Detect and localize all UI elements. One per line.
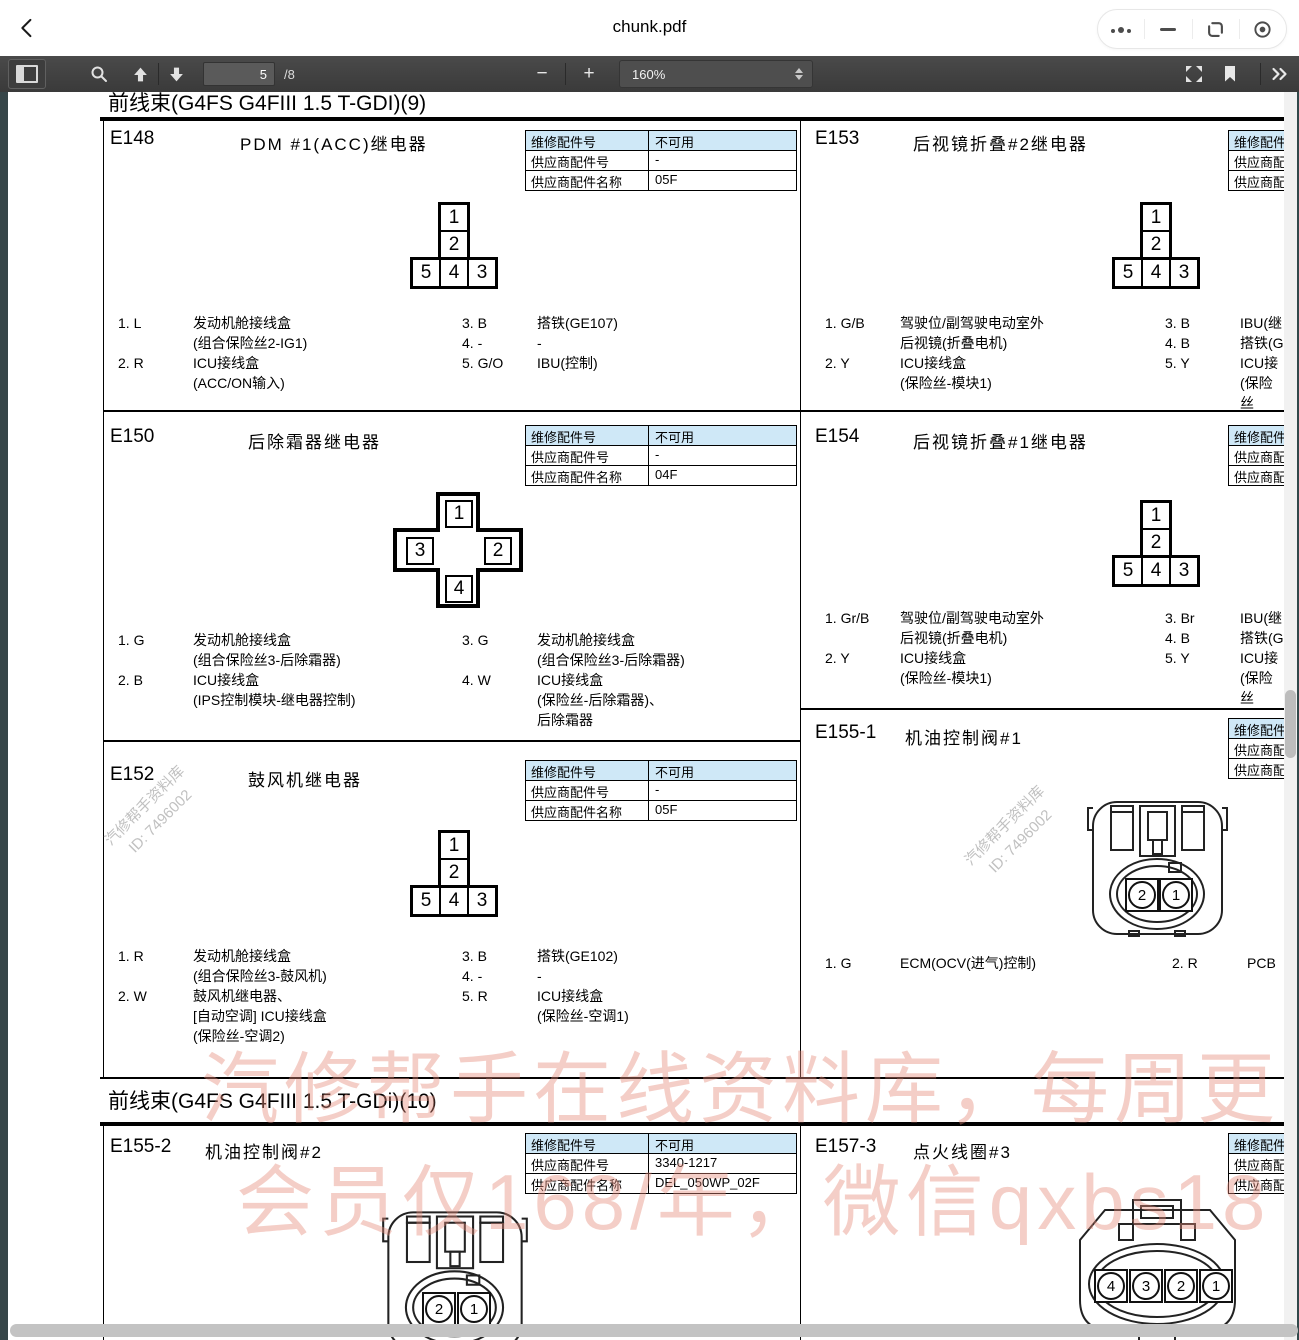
pin-desc: ICU接线盒 (ACC/ON输入) (193, 353, 285, 393)
more-dots-icon (1110, 20, 1133, 38)
connector-title: 机油控制阀#2 (205, 1138, 323, 1163)
toolbar-divider (565, 63, 566, 85)
pin-row: 4. WICU接线盒 (保险丝-后除霜器)、 后除霜器 (462, 670, 685, 730)
pin-list: 3. G发动机舱接线盒 (组合保险丝3-后除霜器) 4. WICU接线盒 (保险… (462, 630, 685, 730)
parts-table: 维修配件号 供应商配件号 供应商配件名称 (1228, 130, 1284, 191)
connector-pin: 2 (441, 232, 467, 257)
pin-list: 1. GECM(OCV(进气)控制) (825, 953, 1036, 973)
pin-row: 5. G/OIBU(控制) (462, 353, 618, 373)
connector-diagram: 1 3 2 4 (393, 492, 523, 613)
pin-row: 2. W鼓风机继电器、 [自动空调] ICU接线盒 (保险丝-空调2) (118, 986, 327, 1046)
connector-pin-cell: 1 (1159, 878, 1193, 912)
pin-row: 1. G/B驾驶位/副驾驶电动室外 后视镜(折叠电机) (825, 313, 1044, 353)
toolbar-divider (158, 63, 159, 85)
pin-desc: 发动机舱接线盒 (组合保险丝3-鼓风机) (193, 946, 327, 986)
home-button[interactable] (1240, 10, 1286, 48)
table-cell: 不可用 (649, 761, 796, 780)
pin-list: 3. BrIBU(继 4. B搭铁(G 5. YICU接 (保险丝 (1165, 608, 1284, 708)
connector-pin-cell: 3 (1129, 1269, 1163, 1303)
restore-icon (1207, 21, 1224, 38)
pin-desc: ICU接 (保险丝 (1240, 353, 1284, 413)
connector-pin: 4 (441, 888, 469, 914)
toggle-sidebar-button[interactable] (8, 59, 46, 89)
connector-pin: 4 (1143, 260, 1171, 286)
table-row: 维修配件号 (1229, 1134, 1284, 1154)
table-cell: 维修配件号 (526, 761, 649, 780)
connector-title: 机油控制阀#1 (905, 724, 1023, 749)
pin-desc: IBU(继 (1240, 313, 1282, 333)
table-row: 供应商配件号 (1229, 151, 1284, 171)
pin-row: 2. RICU接线盒 (ACC/ON输入) (118, 353, 307, 393)
pin-row: 1. R发动机舱接线盒 (组合保险丝3-鼓风机) (118, 946, 327, 986)
oval-connector-outline (1085, 790, 1230, 940)
pin-list: 3. B搭铁(GE102) 4. -- 5. RICU接线盒 (保险丝-空调1) (462, 946, 629, 1026)
next-page-button[interactable] (168, 66, 185, 83)
connector-pin-cell: 2 (1164, 1269, 1198, 1303)
table-cell: 3340-1217 (649, 1154, 796, 1173)
table-row: 供应商配件名称 (1229, 1174, 1284, 1193)
zoom-level-value: 160% (632, 67, 665, 82)
connector-id: E155-1 (815, 722, 876, 744)
connector-pin-cell: 4 (1094, 1269, 1128, 1303)
connector-pin: 3 (1132, 1272, 1160, 1300)
table-row: 维修配件号不可用 (526, 1134, 796, 1154)
watermark-stamp-text: 汽修帮手资料库 (937, 758, 1073, 894)
pin-list: 3. BIBU(继 4. B搭铁(G 5. YICU接 (保险丝 (1165, 313, 1284, 413)
connector-pin: 2 (1167, 1272, 1195, 1300)
table-cell: 供应商配件号 (526, 1154, 649, 1173)
pin-row: 5. RICU接线盒 (保险丝-空调1) (462, 986, 629, 1026)
watermark-stamp: 汽修帮手资料库 ID: 7496002 (937, 758, 1088, 909)
separator-line (100, 1077, 1284, 1079)
pin-id: 2. W (118, 986, 193, 1046)
connector-pin: 2 (425, 1295, 453, 1323)
pin-row: 1. GECM(OCV(进气)控制) (825, 953, 1036, 973)
pin-list: 2. RPCB (1172, 953, 1276, 973)
pin-desc: 鼓风机继电器、 [自动空调] ICU接线盒 (保险丝-空调2) (193, 986, 327, 1046)
frame-line (103, 121, 104, 1078)
select-spinner-icon (795, 68, 803, 80)
rule (100, 117, 1284, 121)
connector-pin: 1 (1162, 881, 1190, 909)
pin-row: 1. G发动机舱接线盒 (组合保险丝3-后除霜器) (118, 630, 356, 670)
connector-pin-cell: 2 (422, 1292, 456, 1326)
previous-page-button[interactable] (132, 66, 149, 83)
connector-pin-cell: 1 (457, 1292, 491, 1326)
pin-row: 3. BrIBU(继 (1165, 608, 1284, 628)
pin-id: 1. L (118, 313, 193, 353)
pin-desc: ECM(OCV(进气)控制) (900, 953, 1036, 973)
pin-row: 2. YICU接线盒 (保险丝-模块1) (825, 353, 1044, 393)
connector-pin: 2 (441, 860, 467, 885)
connector-diagram: 2 1 (1085, 790, 1230, 945)
connector-pin: 5 (1115, 558, 1143, 584)
connector-title: 后视镜折叠#2继电器 (913, 130, 1088, 155)
pin-id: 2. B (118, 670, 193, 710)
table-cell: 供应商配件名称 (1229, 759, 1284, 778)
pin-id: 4. W (462, 670, 537, 730)
minimize-icon (1160, 28, 1176, 31)
pin-desc: ICU接线盒 (保险丝-模块1) (900, 648, 992, 688)
pin-id: 5. R (462, 986, 537, 1026)
pin-row: 2. YICU接线盒 (保险丝-模块1) (825, 648, 1044, 688)
table-cell: 供应商配件号 (1229, 1154, 1284, 1173)
table-cell: 不可用 (649, 426, 796, 445)
page-number-input[interactable] (203, 62, 275, 86)
separator-line (800, 708, 1284, 710)
parts-table: 维修配件号不可用 供应商配件号- 供应商配件名称04F (525, 425, 797, 486)
table-cell: 维修配件号 (526, 1134, 649, 1153)
pin-row: 5. YICU接 (保险丝 (1165, 648, 1284, 708)
section-header-9: 前线束(G4FS G4FIII 1.5 T-GDI)(9) (108, 92, 426, 117)
table-row: 供应商配件名称05F (526, 801, 796, 820)
pin-id: 3. B (462, 946, 537, 966)
pin-id: 5. Y (1165, 353, 1240, 413)
connector-pin: 4 (1097, 1272, 1125, 1300)
connector-diagram: 4 3 2 1 (1075, 1198, 1240, 1340)
table-cell: 维修配件号 (1229, 719, 1284, 738)
pin-desc: - (537, 966, 542, 986)
pin-list: 1. L发动机舱接线盒 (组合保险丝2-IG1) 2. RICU接线盒 (ACC… (118, 313, 307, 393)
pin-id: 2. Y (825, 353, 900, 393)
horizontal-scrollbar-thumb[interactable] (10, 1324, 1298, 1337)
watermark-stamp-text: 汽修帮手资料库 (77, 738, 213, 874)
table-row: 供应商配件号3340-1217 (526, 1154, 796, 1174)
pin-id: 1. Gr/B (825, 608, 900, 648)
pin-desc: ICU接线盒 (IPS控制模块-继电器控制) (193, 670, 356, 710)
pin-desc: 发动机舱接线盒 (组合保险丝3-后除霜器) (537, 630, 685, 670)
pin-row: 5. YICU接 (保险丝 (1165, 353, 1284, 413)
pdf-page: 前线束(G4FS G4FIII 1.5 T-GDI)(9) E148 PDM #… (8, 92, 1284, 1340)
bookmark-button[interactable] (1223, 65, 1237, 83)
connector-id: E157-3 (815, 1136, 876, 1158)
pin-row: 3. G发动机舱接线盒 (组合保险丝3-后除霜器) (462, 630, 685, 670)
pin-row: 2. RPCB (1172, 953, 1276, 973)
bookmark-icon (1223, 65, 1237, 83)
watermark-stamp: 汽修帮手资料库 ID: 7496002 (77, 738, 228, 889)
pin-id: 1. G/B (825, 313, 900, 353)
frame-line (800, 121, 801, 1078)
connector-id: E154 (815, 426, 859, 448)
table-cell: 04F (649, 466, 796, 485)
pin-row: 3. B搭铁(GE107) (462, 313, 618, 333)
pin-row: 3. B搭铁(GE102) (462, 946, 629, 966)
pin-list: 1. G/B驾驶位/副驾驶电动室外 后视镜(折叠电机) 2. YICU接线盒 (… (825, 313, 1044, 393)
table-cell: 供应商配件名称 (526, 171, 649, 190)
table-row: 供应商配件号- (526, 151, 796, 171)
pin-desc: 搭铁(GE107) (537, 313, 618, 333)
connector-pin: 5 (413, 260, 441, 286)
table-cell: 供应商配件名称 (1229, 1174, 1284, 1193)
connector-pin: 2 (1143, 530, 1169, 555)
pin-id: 2. Y (825, 648, 900, 688)
table-row: 维修配件号不可用 (526, 426, 796, 446)
table-row: 供应商配件号 (1229, 446, 1284, 466)
pin-row: 4. B搭铁(G (1165, 333, 1284, 353)
table-row: 供应商配件名称05F (526, 171, 796, 190)
pin-row: 1. L发动机舱接线盒 (组合保险丝2-IG1) (118, 313, 307, 353)
connector-title: PDM #1(ACC)继电器 (240, 130, 428, 155)
connector-pin: 1 (441, 205, 467, 232)
table-cell: 05F (649, 171, 796, 190)
table-cell: 不可用 (649, 131, 796, 150)
table-row: 供应商配件号- (526, 446, 796, 466)
pin-desc: IBU(控制) (537, 353, 598, 373)
connector-diagram: 2 1 (380, 1200, 530, 1340)
table-row: 维修配件号不可用 (526, 761, 796, 781)
zoom-level-select[interactable]: 160% (619, 60, 813, 88)
page-count-label: /8 (284, 67, 295, 82)
pin-id: 3. B (462, 313, 537, 333)
search-button[interactable] (90, 65, 108, 83)
table-row: 供应商配件号 (1229, 1154, 1284, 1174)
capsule-menu (1097, 9, 1287, 49)
table-row: 维修配件号 (1229, 426, 1284, 446)
connector-id: E148 (110, 128, 154, 150)
parts-table: 维修配件号 供应商配件号 供应商配件名称 (1228, 718, 1284, 779)
window-titlebar: chunk.pdf (0, 0, 1299, 56)
restore-button[interactable] (1193, 10, 1239, 48)
table-row: 维修配件号 (1229, 131, 1284, 151)
table-row: 供应商配件号 (1229, 739, 1284, 759)
table-cell: 维修配件号 (1229, 1134, 1284, 1153)
parts-table: 维修配件号不可用 供应商配件号- 供应商配件名称05F (525, 760, 797, 821)
pin-id: 2. R (118, 353, 193, 393)
table-cell: 供应商配件号 (526, 151, 649, 170)
connector-pin: 1 (460, 1295, 488, 1323)
connector-title: 后视镜折叠#1继电器 (913, 428, 1088, 453)
connector-pin: 4 (445, 575, 473, 603)
zoom-out-button[interactable]: − (528, 63, 556, 85)
more-tools-button[interactable] (1270, 65, 1289, 83)
more-button[interactable] (1098, 10, 1144, 48)
table-row: 供应商配件名称 (1229, 759, 1284, 778)
arrow-down-icon (168, 66, 185, 83)
table-cell: 维修配件号 (1229, 426, 1284, 445)
table-cell: 供应商配件名称 (526, 466, 649, 485)
connector-diagram: 1 2 5 4 3 (410, 202, 498, 289)
connector-id: E155-2 (110, 1136, 171, 1158)
pin-id: 1. G (825, 953, 900, 973)
pin-id: 4. B (1165, 333, 1240, 353)
table-cell: 供应商配件名称 (1229, 171, 1284, 190)
pin-id: 5. Y (1165, 648, 1240, 708)
pin-id: 4. - (462, 333, 537, 353)
connector-id: E153 (815, 128, 859, 150)
pin-list: 1. R发动机舱接线盒 (组合保险丝3-鼓风机) 2. W鼓风机继电器、 [自动… (118, 946, 327, 1046)
table-cell: 供应商配件号 (526, 781, 649, 800)
connector-title: 鼓风机继电器 (248, 766, 362, 791)
pdf-toolbar: /8 − + 160% (0, 56, 1299, 93)
pin-id: 4. - (462, 966, 537, 986)
connector-title: 后除霜器继电器 (248, 428, 381, 453)
connector-id: E150 (110, 426, 154, 448)
pin-row: 4. -- (462, 966, 629, 986)
pin-desc: PCB (1247, 953, 1276, 973)
connector-diagram: 1 2 5 4 3 (410, 830, 498, 917)
table-cell: 供应商配件名称 (1229, 466, 1284, 485)
fullscreen-button[interactable] (1185, 65, 1203, 83)
connector-pin: 4 (441, 260, 469, 286)
pin-desc: - (537, 333, 542, 353)
rule (100, 1122, 1284, 1126)
table-cell: - (649, 446, 796, 465)
pin-desc: ICU接 (保险丝 (1240, 648, 1284, 708)
table-cell: 供应商配件号 (1229, 151, 1284, 170)
pin-desc: ICU接线盒 (保险丝-后除霜器)、 后除霜器 (537, 670, 663, 730)
connector-pin: 3 (1171, 558, 1197, 584)
connector-pin: 2 (1128, 881, 1156, 909)
separator-line (103, 740, 800, 742)
table-cell: 05F (649, 801, 796, 820)
table-cell: 维修配件号 (526, 426, 649, 445)
table-cell: 供应商配件号 (1229, 739, 1284, 758)
pin-row: 4. B搭铁(G (1165, 628, 1284, 648)
connector-id: E152 (110, 764, 154, 786)
connector-pin: 3 (406, 537, 434, 565)
pin-row: 1. Gr/B驾驶位/副驾驶电动室外 后视镜(折叠电机) (825, 608, 1044, 648)
table-row: 供应商配件名称04F (526, 466, 796, 485)
pin-id: 1. G (118, 630, 193, 670)
table-cell: - (649, 151, 796, 170)
pin-desc: 发动机舱接线盒 (组合保险丝3-后除霜器) (193, 630, 341, 670)
pin-row: 2. BICU接线盒 (IPS控制模块-继电器控制) (118, 670, 356, 710)
table-row: 维修配件号不可用 (526, 131, 796, 151)
parts-table: 维修配件号不可用 供应商配件号- 供应商配件名称05F (525, 130, 797, 191)
table-row: 供应商配件名称 (1229, 171, 1284, 190)
section-header-10: 前线束(G4FS G4FIII 1.5 T-GDi)(10) (108, 1085, 437, 1115)
table-cell: 供应商配件名称 (526, 801, 649, 820)
pdf-viewport[interactable]: 前线束(G4FS G4FIII 1.5 T-GDI)(9) E148 PDM #… (0, 92, 1299, 1340)
table-row: 供应商配件号- (526, 781, 796, 801)
parts-table: 维修配件号 供应商配件号 供应商配件名称 (1228, 425, 1284, 486)
table-cell: 供应商配件名称 (526, 1174, 649, 1193)
pin-id: 4. B (1165, 628, 1240, 648)
pin-desc: 发动机舱接线盒 (组合保险丝2-IG1) (193, 313, 307, 353)
table-cell: 不可用 (649, 1134, 796, 1153)
double-chevron-right-icon (1270, 65, 1289, 83)
pin-desc: 搭铁(G (1240, 628, 1284, 648)
connector-pin: 1 (1202, 1272, 1230, 1300)
separator-line (103, 410, 800, 412)
fullscreen-icon (1185, 65, 1203, 83)
parts-table: 维修配件号不可用 供应商配件号3340-1217 供应商配件名称DEL_050W… (525, 1133, 797, 1194)
connector-pin: 5 (1115, 260, 1143, 286)
app-window: chunk.pdf (0, 0, 1299, 1340)
connector-pin: 1 (445, 500, 473, 528)
parts-table: 维修配件号 供应商配件号 供应商配件名称 (1228, 1133, 1284, 1194)
pin-desc: ICU接线盒 (保险丝-模块1) (900, 353, 992, 393)
pin-id: 3. G (462, 630, 537, 670)
pin-row: 4. -- (462, 333, 618, 353)
pin-id: 1. R (118, 946, 193, 986)
connector-pin-cell: 1 (1199, 1269, 1233, 1303)
pin-row: 3. BIBU(继 (1165, 313, 1284, 333)
table-cell: 供应商配件号 (1229, 446, 1284, 465)
connector-pin: 5 (413, 888, 441, 914)
pin-id: 3. Br (1165, 608, 1240, 628)
connector-pin: 1 (1143, 503, 1169, 530)
connector-title: 点火线圈#3 (913, 1138, 1012, 1163)
pin-desc: 搭铁(GE102) (537, 946, 618, 966)
pin-id: 3. B (1165, 313, 1240, 333)
sidebar-icon (16, 65, 38, 83)
minimize-button[interactable] (1145, 10, 1191, 48)
connector-pin: 3 (469, 888, 495, 914)
connector-pin: 2 (1143, 232, 1169, 257)
record-circle-icon (1253, 20, 1272, 39)
pin-list: 1. Gr/B驾驶位/副驾驶电动室外 后视镜(折叠电机) 2. YICU接线盒 … (825, 608, 1044, 688)
frame-line (800, 1126, 801, 1340)
connector-pin-cell: 2 (1125, 878, 1159, 912)
vertical-scrollbar-thumb[interactable] (1285, 690, 1296, 758)
pin-desc: IBU(继 (1240, 608, 1282, 628)
pin-desc: 搭铁(G (1240, 333, 1284, 353)
pin-id: 5. G/O (462, 353, 537, 373)
table-cell: 供应商配件号 (526, 446, 649, 465)
table-cell: 维修配件号 (1229, 131, 1284, 150)
table-row: 维修配件号 (1229, 719, 1284, 739)
connector-pin: 4 (1143, 558, 1171, 584)
connector-pin: 1 (1143, 205, 1169, 232)
connector-pin: 3 (469, 260, 495, 286)
pin-id: 2. R (1172, 953, 1247, 973)
connector-pin: 2 (484, 537, 512, 565)
pin-list: 3. B搭铁(GE107) 4. -- 5. G/OIBU(控制) (462, 313, 618, 373)
pin-list: 1. G发动机舱接线盒 (组合保险丝3-后除霜器) 2. BICU接线盒 (IP… (118, 630, 356, 710)
search-icon (90, 65, 108, 83)
table-cell: - (649, 781, 796, 800)
table-row: 供应商配件名称 (1229, 466, 1284, 485)
vertical-scrollbar[interactable] (1284, 92, 1297, 1340)
table-cell: 维修配件号 (526, 131, 649, 150)
table-cell: DEL_050WP_02F (649, 1174, 796, 1193)
table-row: 供应商配件名称DEL_050WP_02F (526, 1174, 796, 1193)
arrow-up-icon (132, 66, 149, 83)
pin-desc: 驾驶位/副驾驶电动室外 后视镜(折叠电机) (900, 313, 1044, 353)
frame-line (103, 1126, 104, 1340)
connector-pin: 3 (1171, 260, 1197, 286)
connector-diagram: 1 2 5 4 3 (1112, 202, 1200, 289)
connector-diagram: 1 2 5 4 3 (1112, 500, 1200, 587)
zoom-in-button[interactable]: + (575, 63, 603, 85)
pin-desc: ICU接线盒 (保险丝-空调1) (537, 986, 629, 1026)
connector-pin: 1 (441, 833, 467, 860)
toolbar-divider (1260, 63, 1261, 85)
pin-desc: 驾驶位/副驾驶电动室外 后视镜(折叠电机) (900, 608, 1044, 648)
